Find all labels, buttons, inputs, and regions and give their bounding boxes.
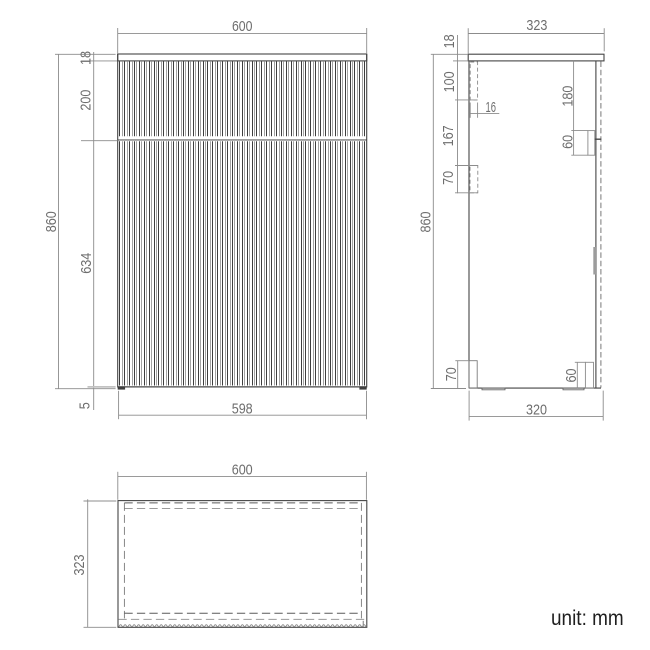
svg-text:167: 167 <box>440 125 457 146</box>
svg-text:323: 323 <box>71 555 88 576</box>
svg-text:100: 100 <box>441 71 458 92</box>
svg-text:634: 634 <box>78 253 95 274</box>
svg-text:unit: mm: unit: mm <box>551 607 624 630</box>
svg-text:180: 180 <box>559 86 576 107</box>
svg-text:5: 5 <box>77 402 94 409</box>
svg-text:18: 18 <box>441 34 458 48</box>
svg-text:860: 860 <box>43 211 60 232</box>
svg-text:600: 600 <box>232 461 253 478</box>
svg-text:60: 60 <box>559 135 576 149</box>
svg-text:70: 70 <box>440 171 457 185</box>
svg-text:60: 60 <box>563 369 580 383</box>
svg-text:70: 70 <box>443 367 460 381</box>
svg-text:600: 600 <box>232 18 253 35</box>
svg-text:320: 320 <box>526 401 547 418</box>
svg-text:323: 323 <box>526 17 547 34</box>
svg-text:598: 598 <box>232 400 253 417</box>
svg-text:200: 200 <box>78 90 95 111</box>
svg-text:860: 860 <box>418 212 435 233</box>
svg-text:18: 18 <box>77 51 94 65</box>
svg-text:16: 16 <box>486 99 497 116</box>
